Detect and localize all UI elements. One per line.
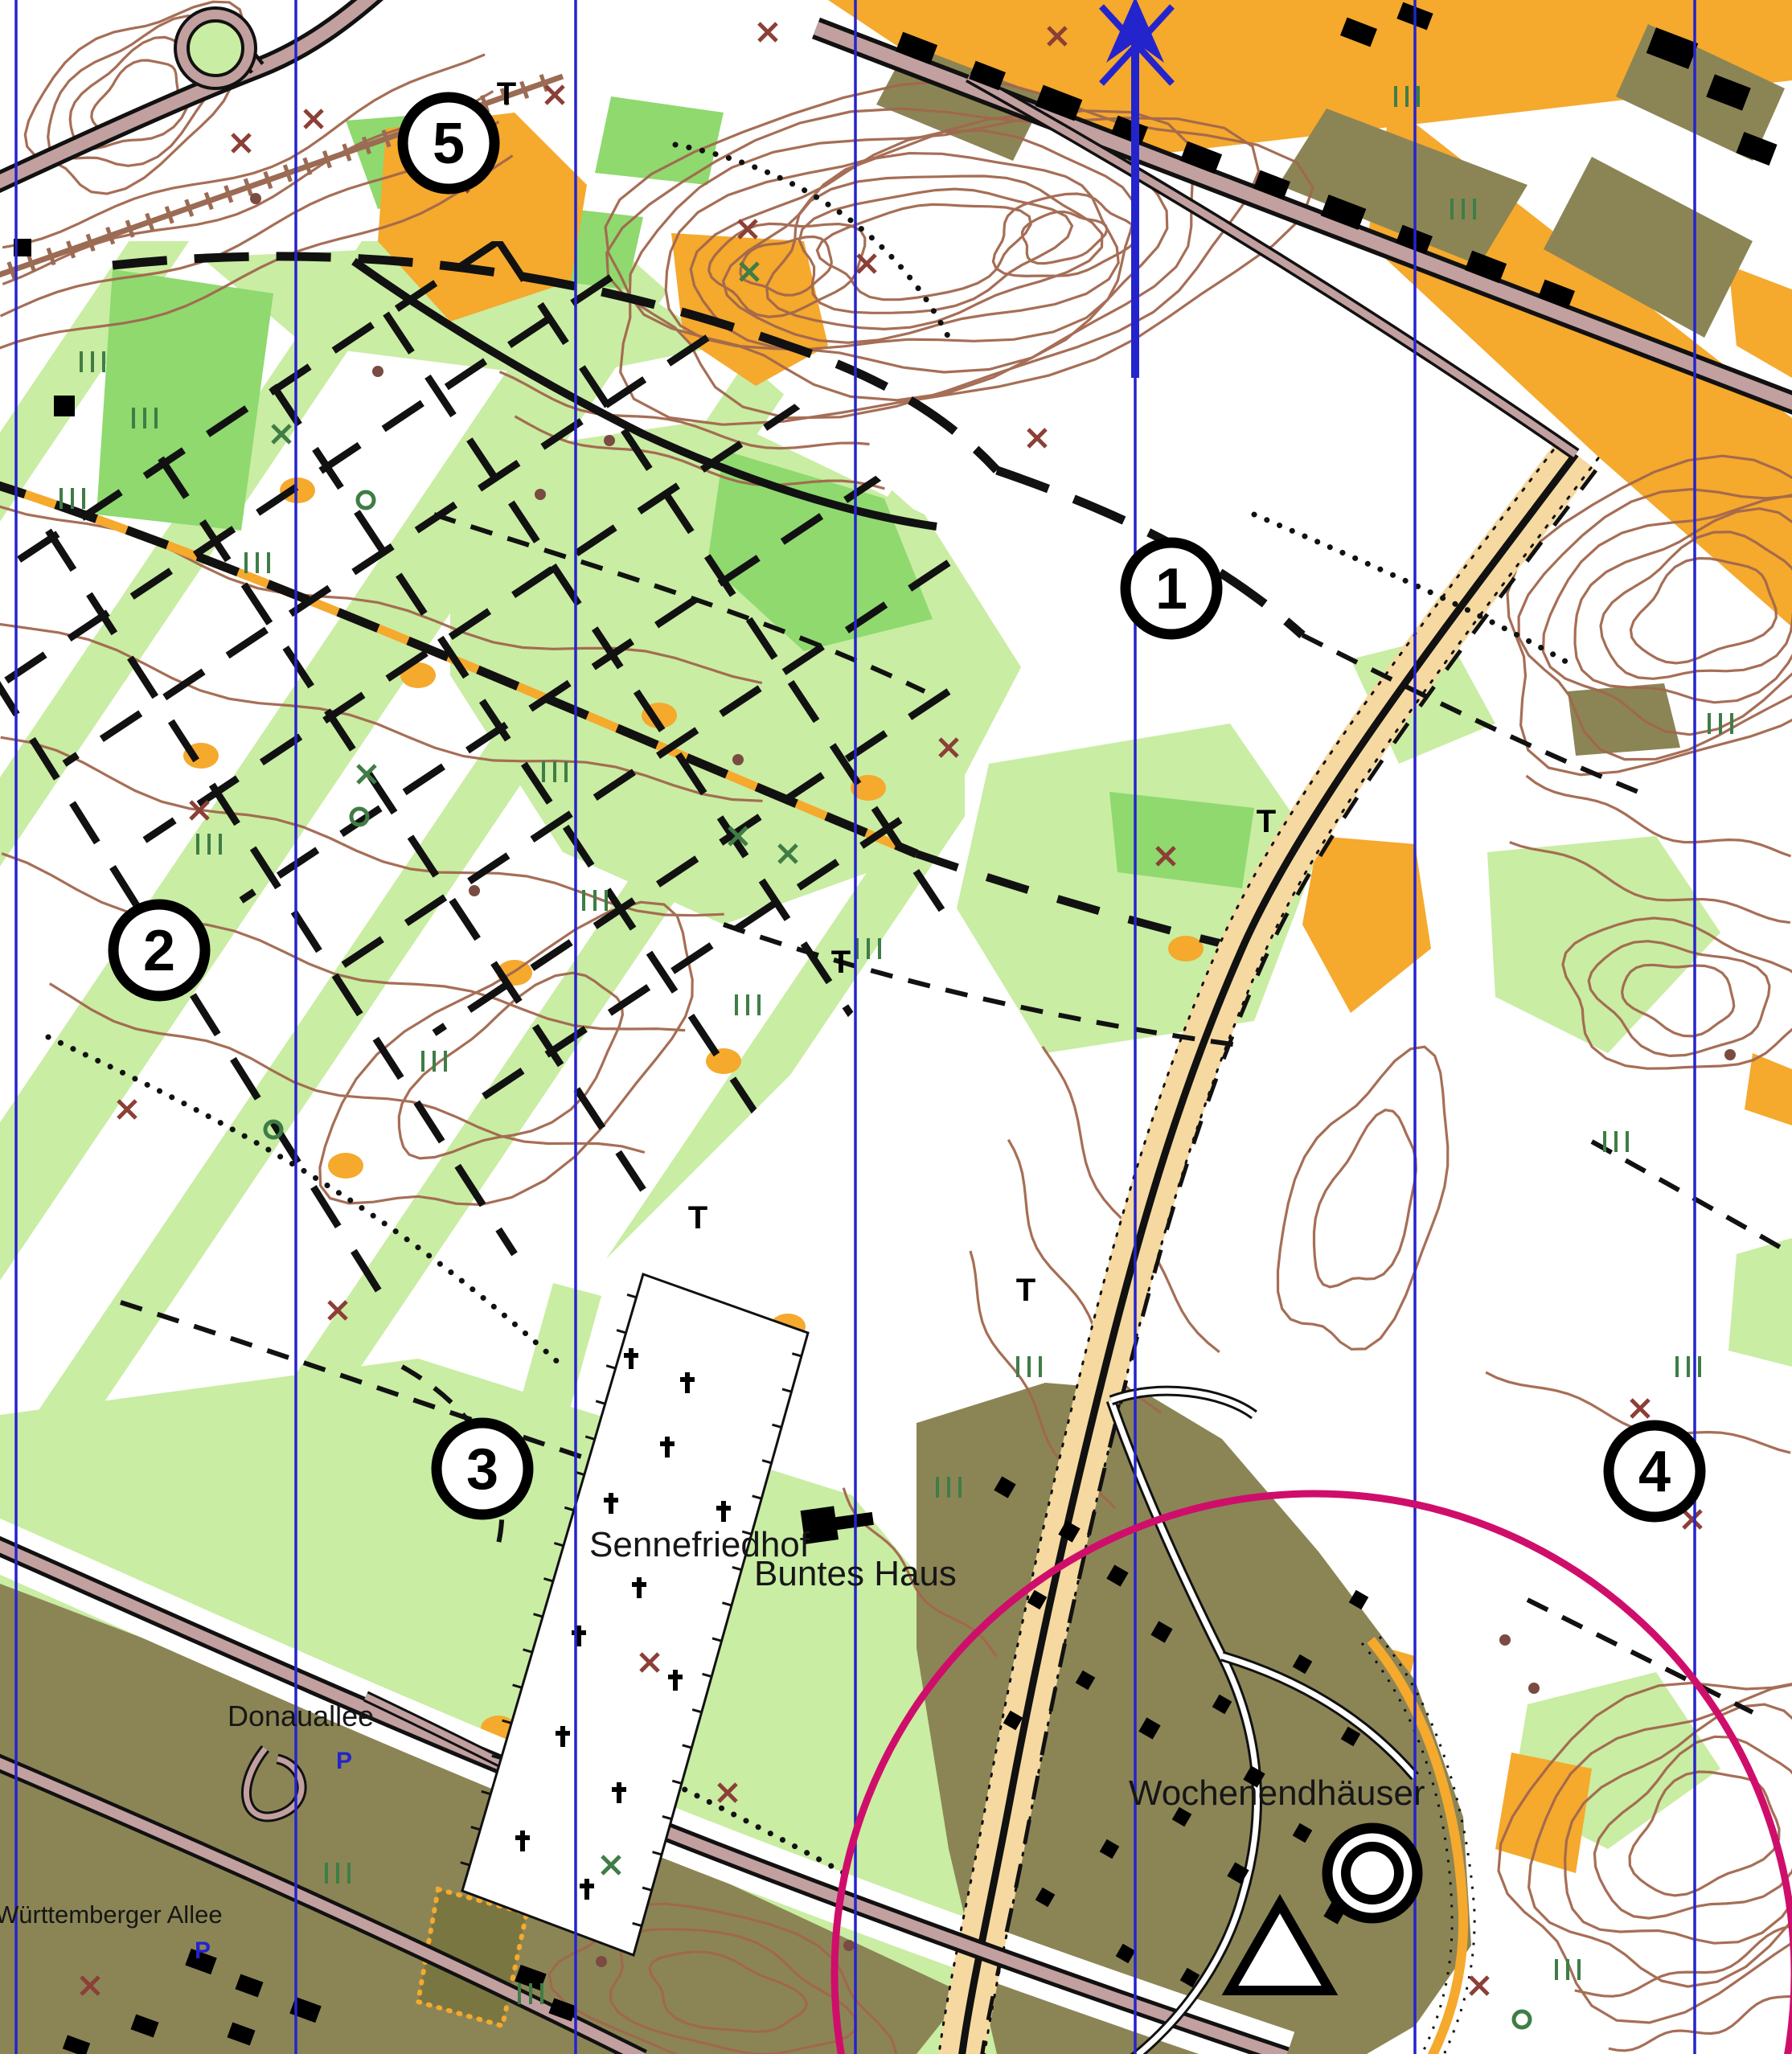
- control-number-2: 2: [143, 919, 175, 983]
- map-stage: TTTTTPP SennefriedhofBuntes HausWochenen…: [0, 0, 1792, 2054]
- control-number-5: 5: [433, 112, 465, 176]
- parking-icon: P: [195, 1937, 211, 1964]
- t-symbol: T: [1257, 804, 1276, 839]
- knoll-dot-icon: [843, 1940, 855, 1951]
- control-number-4: 4: [1638, 1440, 1671, 1504]
- place-label: Wochenendhäuser: [1129, 1773, 1425, 1813]
- knoll-dot-icon: [469, 885, 480, 896]
- building: [54, 396, 75, 416]
- t-symbol: T: [831, 945, 851, 980]
- place-label: Donauallee: [228, 1699, 374, 1732]
- place-label: Württemberger Allee: [0, 1900, 223, 1929]
- thicket-east: [1109, 792, 1254, 888]
- knoll-dot-icon: [604, 435, 615, 446]
- control-number-1: 1: [1155, 557, 1187, 621]
- knoll-dot-icon: [250, 193, 261, 204]
- knoll-dot-icon: [1499, 1634, 1511, 1646]
- knoll-dot-icon: [535, 489, 546, 500]
- t-symbol: T: [497, 76, 516, 112]
- open-patch-small: [328, 1153, 363, 1179]
- open-patch-small: [1168, 936, 1204, 961]
- meadow-edge-e: [1728, 1238, 1792, 1367]
- finish-inner-circle: [1346, 1847, 1399, 1900]
- settlement-blob-e: [1568, 683, 1680, 756]
- knoll-dot-icon: [1528, 1683, 1540, 1694]
- parking-icon: P: [336, 1748, 352, 1774]
- control-number-3: 3: [466, 1437, 498, 1502]
- t-symbol: T: [688, 1200, 707, 1236]
- orienteering-map: TTTTTPP SennefriedhofBuntes HausWochenen…: [0, 0, 1792, 2054]
- knoll-dot-icon: [596, 1956, 607, 1967]
- knoll-dot-icon: [372, 366, 383, 377]
- place-label: Buntes Haus: [754, 1554, 957, 1593]
- t-symbol: T: [1016, 1273, 1035, 1308]
- knoll-dot-icon: [1724, 1049, 1736, 1060]
- knoll-dot-icon: [732, 754, 744, 765]
